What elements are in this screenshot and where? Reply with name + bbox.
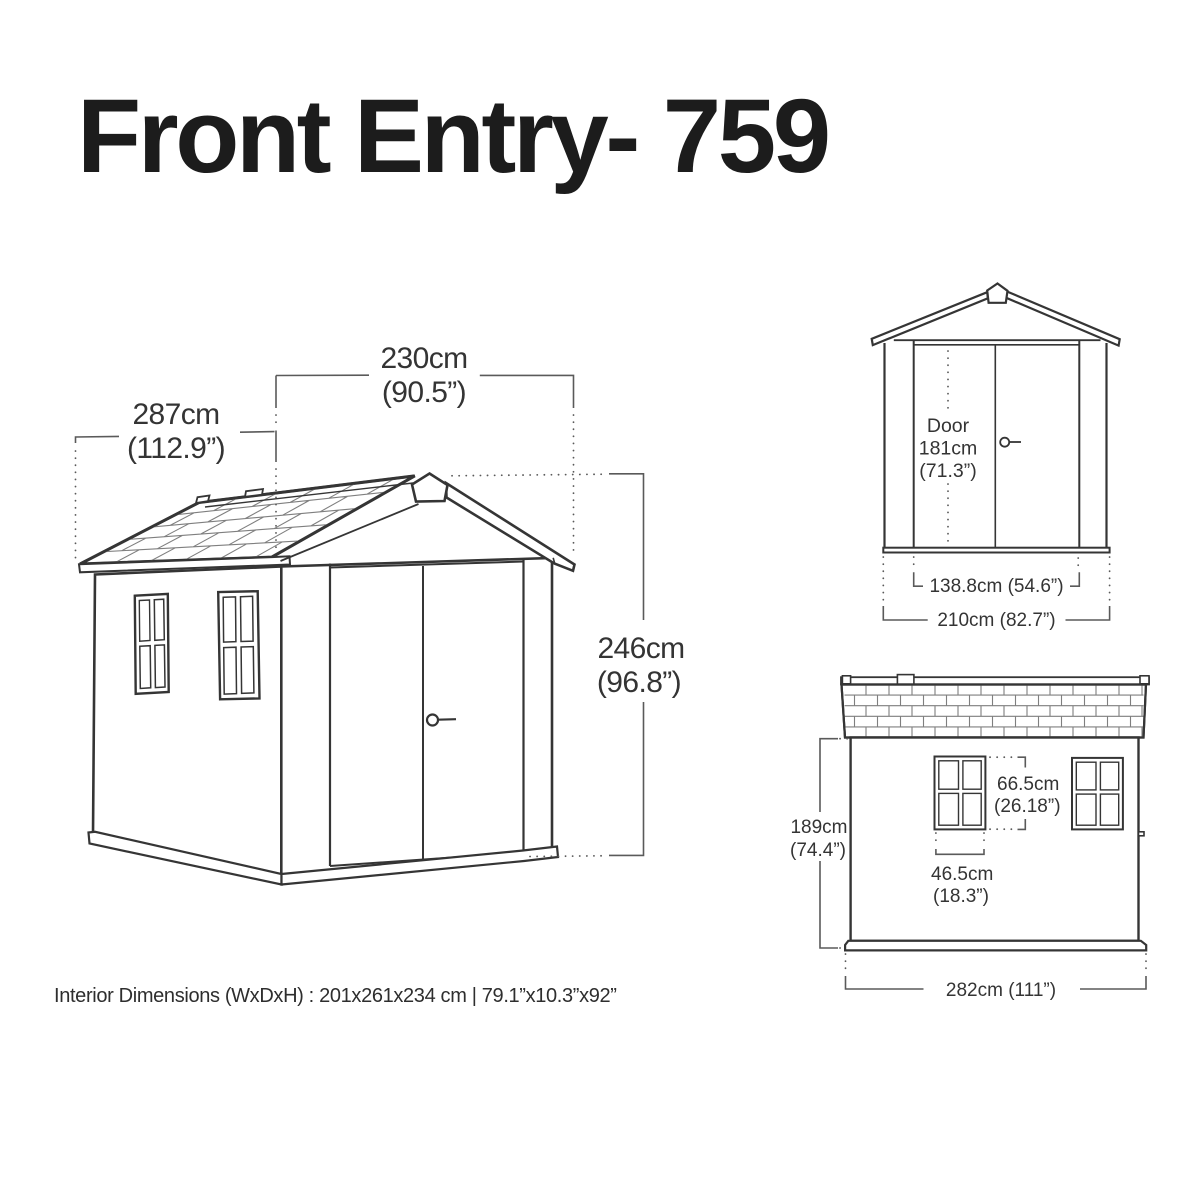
- svg-text:(90.5”): (90.5”): [382, 376, 466, 409]
- svg-text:(96.8”): (96.8”): [597, 666, 681, 699]
- svg-text:(18.3”): (18.3”): [933, 886, 989, 907]
- svg-text:189cm: 189cm: [790, 817, 847, 838]
- svg-text:210cm (82.7”): 210cm (82.7”): [937, 610, 1055, 631]
- svg-text:Front Entry- 759: Front Entry- 759: [77, 78, 828, 195]
- svg-text:181cm: 181cm: [919, 438, 978, 460]
- svg-text:46.5cm: 46.5cm: [931, 864, 993, 885]
- svg-text:282cm (111”): 282cm (111”): [946, 980, 1056, 1001]
- svg-text:(112.9”): (112.9”): [127, 432, 225, 465]
- svg-text:(74.4”): (74.4”): [790, 840, 846, 861]
- svg-text:Interior Dimensions (WxDxH) :: Interior Dimensions (WxDxH) : 201x261x23…: [54, 985, 617, 1007]
- svg-text:(26.18”): (26.18”): [994, 796, 1061, 817]
- svg-text:287cm: 287cm: [132, 398, 219, 431]
- svg-text:66.5cm: 66.5cm: [997, 774, 1059, 795]
- svg-text:138.8cm (54.6”): 138.8cm (54.6”): [929, 576, 1063, 597]
- svg-text:230cm: 230cm: [380, 342, 467, 375]
- svg-text:Door: Door: [927, 415, 970, 437]
- svg-text:(71.3”): (71.3”): [919, 460, 976, 482]
- svg-text:246cm: 246cm: [597, 632, 684, 665]
